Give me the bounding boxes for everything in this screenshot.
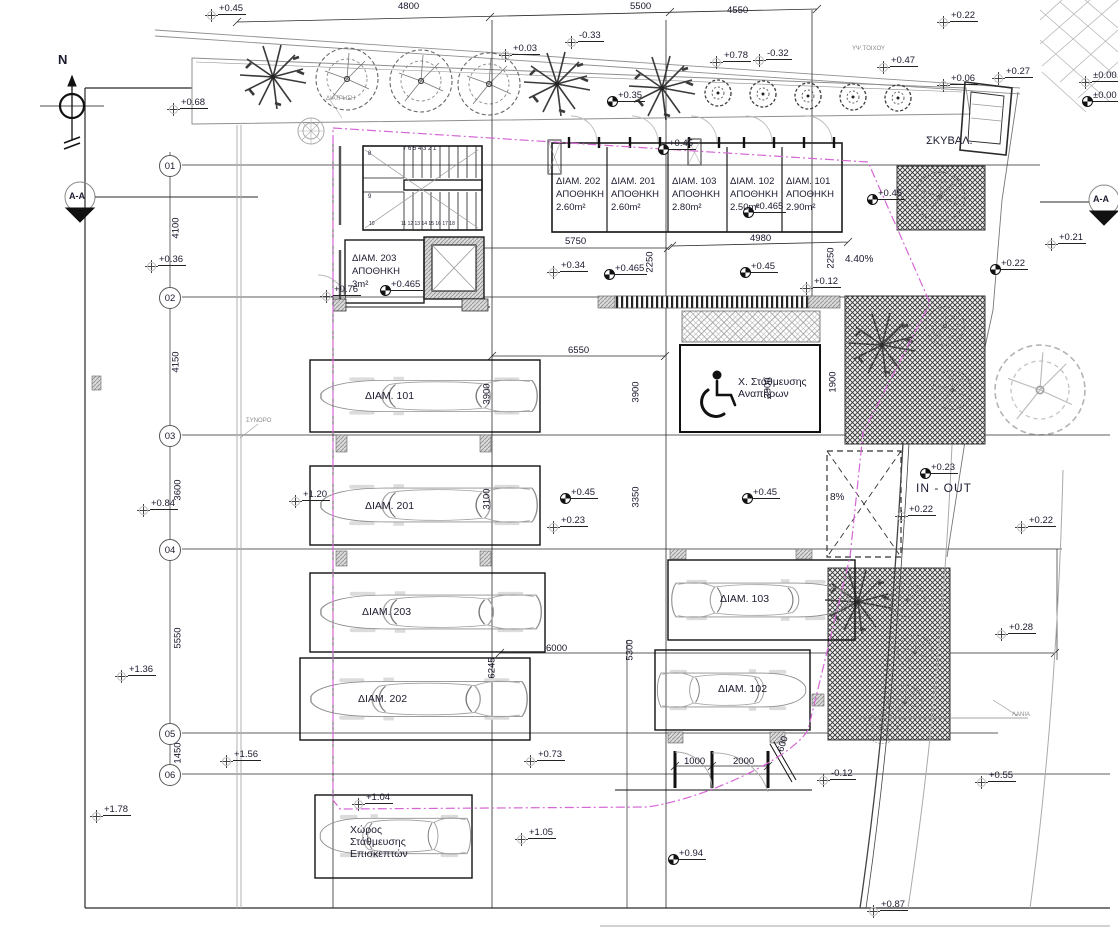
level-symbol-icon [920, 468, 931, 479]
elevation-mark: ±0.00 [1092, 90, 1118, 102]
level-symbol-icon [895, 510, 908, 523]
dimension-label: 600 [775, 735, 790, 753]
level-symbol-icon [289, 495, 302, 508]
level-symbol-icon [992, 72, 1005, 85]
storage-unit-label: ΔΙΑΜ. 101 ΑΠΟΘΗΚΗ 2.90m² [786, 176, 834, 214]
elevation-mark: +1.04 [365, 792, 393, 804]
dimension-label: 3900 [482, 383, 493, 404]
elevation-mark: -0.12 [830, 768, 856, 780]
dimension-label: 3100 [482, 488, 493, 509]
grid-bubble-03: 03 [159, 425, 181, 447]
level-symbol-icon [1045, 238, 1058, 251]
elevation-mark: +0.68 [180, 97, 208, 109]
elevation-mark: +0.03 [512, 43, 540, 55]
level-symbol-icon [867, 905, 880, 918]
elevation-mark: +0.78 [723, 50, 751, 62]
level-symbol-icon [137, 504, 150, 517]
level-symbol-icon [607, 96, 618, 107]
text-label: 8 [368, 151, 448, 159]
level-symbol-icon [115, 670, 128, 683]
elevation-mark: +0.34 [560, 260, 588, 272]
parking-stall-label: ΔΙΑΜ. 101 [365, 390, 414, 402]
level-symbol-icon [220, 755, 233, 768]
parking-stall-label: ΔΙΑΜ. 202 [358, 693, 407, 705]
level-symbol-icon [167, 103, 180, 116]
grid-bubble-06: 06 [159, 764, 181, 786]
elevation-mark: +0.35 [617, 90, 645, 102]
elevation-mark: -0.32 [766, 48, 792, 60]
storage-unit-label: ΔΙΑΜ. 201 ΑΠΟΘΗΚΗ 2.60m² [611, 176, 659, 214]
dimension-label: 6550 [568, 345, 589, 356]
dimension-label: 5550 [173, 627, 184, 648]
elevation-mark: +0.22 [1028, 515, 1056, 527]
elevation-mark: +0.06 [950, 73, 978, 85]
elevation-mark: +0.12 [813, 276, 841, 288]
storage-unit-label: ΔΙΑΜ. 102 ΑΠΟΘΗΚΗ 2.50m² [730, 176, 778, 214]
level-symbol-icon [753, 54, 766, 67]
elevation-mark: +0.45 [668, 138, 696, 150]
text-label: ΣΚΥΒΑΛ. [926, 135, 973, 149]
level-symbol-icon [710, 56, 723, 69]
parking-stall-label: ΔΙΑΜ. 103 [720, 593, 769, 605]
storage-unit-label: ΔΙΑΜ. 203 ΑΠΟΘΗΚΗ 3m² [352, 253, 400, 291]
elevation-mark: +0.84 [150, 498, 178, 510]
level-symbol-icon [90, 810, 103, 823]
parking-stall-label: ΔΙΑΜ. 201 [365, 500, 414, 512]
text-label: ΔΙΑΤΡΗΣΗ [326, 96, 355, 104]
level-symbol-icon [499, 49, 512, 62]
grid-bubble-05: 05 [159, 723, 181, 745]
text-label: ΣΥΝΟΡΟ [246, 418, 271, 426]
text-label: IN - OUT [916, 481, 972, 496]
grid-bubble-04: 04 [159, 539, 181, 561]
level-symbol-icon [524, 755, 537, 768]
visitor-parking-label: Χώρος Στάθμευσης Επισκεπτών [350, 824, 408, 860]
elevation-mark: +0.45 [570, 487, 598, 499]
level-symbol-icon [740, 267, 751, 278]
parking-stall-label: ΔΙΑΜ. 102 [718, 683, 767, 695]
dimension-label: 3900 [631, 381, 642, 402]
level-symbol-icon [560, 493, 571, 504]
elevation-mark: +0.45 [752, 487, 780, 499]
dimension-label: 2250 [826, 247, 837, 268]
level-symbol-icon [937, 79, 950, 92]
level-symbol-icon [742, 493, 753, 504]
elevation-mark: +0.22 [950, 10, 978, 22]
text-label: 11 12 13 14 15 16 17 18 [401, 221, 485, 227]
dimension-label: 4550 [727, 5, 748, 16]
dimension-label: 1900 [828, 371, 839, 392]
level-symbol-icon [352, 798, 365, 811]
elevation-mark: +0.94 [678, 848, 706, 860]
dimension-label: 6000 [546, 643, 567, 654]
elevation-mark: ±0.00 [1092, 70, 1118, 82]
level-symbol-icon [547, 521, 560, 534]
dimension-label: 4800 [398, 1, 419, 12]
elevation-mark: +0.22 [908, 504, 936, 516]
elevation-mark: +0.45 [877, 188, 905, 200]
dimension-label: 2000 [733, 756, 754, 767]
storage-unit-label: ΔΙΑΜ. 103 ΑΠΟΘΗΚΗ 2.80m² [672, 176, 720, 214]
dimension-label: 4100 [171, 217, 182, 238]
level-symbol-icon [515, 833, 528, 846]
elevation-mark: +0.28 [1008, 622, 1036, 634]
elevation-mark: +0.87 [880, 899, 908, 911]
level-symbol-icon [817, 774, 830, 787]
level-symbol-icon [1082, 96, 1093, 107]
level-symbol-icon [604, 269, 615, 280]
text-label: N [58, 52, 67, 68]
elevation-mark: +1.78 [103, 804, 131, 816]
grid-bubble-02: 02 [159, 287, 181, 309]
text-label: 4.40% [845, 254, 873, 267]
elevation-mark: +0.21 [1058, 232, 1086, 244]
level-symbol-icon [320, 290, 333, 303]
dimension-label: 4150 [171, 351, 182, 372]
text-label: ΥΨ.ΤΟΙΧΟΥ [852, 46, 885, 54]
elevation-mark: +0.36 [158, 254, 186, 266]
elevation-mark: +0.27 [1005, 66, 1033, 78]
text-label: 8% [830, 492, 844, 505]
storage-unit-label: ΔΙΑΜ. 202 ΑΠΟΘΗΚΗ 2.60m² [556, 176, 604, 214]
grid-bubble-01: 01 [159, 155, 181, 177]
disabled-parking-label: Χ. Στάθμευσης Αναπήρων [738, 376, 807, 400]
dimension-label: 4980 [750, 233, 771, 244]
level-symbol-icon [800, 282, 813, 295]
elevation-mark: +1.05 [528, 827, 556, 839]
level-symbol-icon [1015, 521, 1028, 534]
text-label: A-A [69, 191, 85, 202]
elevation-mark: +1.36 [128, 664, 156, 676]
dimension-label: 3350 [631, 486, 642, 507]
site-plan-page: NA-AA-AIN - OUT8%4.40%ΣΚΥΒΑΛ.ΥΨ.ΤΟΙΧΟΥΔΙ… [0, 0, 1118, 932]
text-label: 9 [368, 194, 448, 202]
level-symbol-icon [565, 36, 578, 49]
elevation-mark: +0.23 [930, 462, 958, 474]
elevation-mark: +0.73 [537, 749, 565, 761]
level-symbol-icon [668, 854, 679, 865]
elevation-mark: +0.45 [750, 261, 778, 273]
level-symbol-icon [990, 264, 1001, 275]
level-symbol-icon [1079, 76, 1092, 89]
dimension-label: 1000 [684, 756, 705, 767]
dimension-label: 5500 [630, 1, 651, 12]
elevation-mark: +0.55 [988, 770, 1016, 782]
text-label: ΛΑΝΙΑ [1012, 712, 1030, 720]
level-symbol-icon [205, 9, 218, 22]
elevation-mark: +1.20 [302, 489, 330, 501]
level-symbol-icon [937, 16, 950, 29]
level-symbol-icon [145, 260, 158, 273]
elevation-mark: +1.56 [233, 749, 261, 761]
elevation-mark: +0.465 [614, 263, 647, 275]
dimension-label: 5750 [565, 236, 586, 247]
elevation-mark: -0.33 [578, 30, 604, 42]
level-symbol-icon [547, 266, 560, 279]
labels-overlay: NA-AA-AIN - OUT8%4.40%ΣΚΥΒΑΛ.ΥΨ.ΤΟΙΧΟΥΔΙ… [0, 0, 1118, 932]
elevation-mark: +0.23 [560, 515, 588, 527]
elevation-mark: +0.45 [218, 3, 246, 15]
elevation-mark: +0.22 [1000, 258, 1028, 270]
parking-stall-label: ΔΙΑΜ. 203 [362, 606, 411, 618]
level-symbol-icon [975, 776, 988, 789]
level-symbol-icon [995, 628, 1008, 641]
level-symbol-icon [877, 61, 890, 74]
level-symbol-icon [867, 194, 878, 205]
dimension-label: 1450 [173, 742, 184, 763]
elevation-mark: +0.47 [890, 55, 918, 67]
text-label: A-A [1093, 194, 1109, 205]
dimension-label: 5300 [625, 639, 636, 660]
dimension-label: 6245 [487, 657, 498, 678]
level-symbol-icon [658, 144, 669, 155]
